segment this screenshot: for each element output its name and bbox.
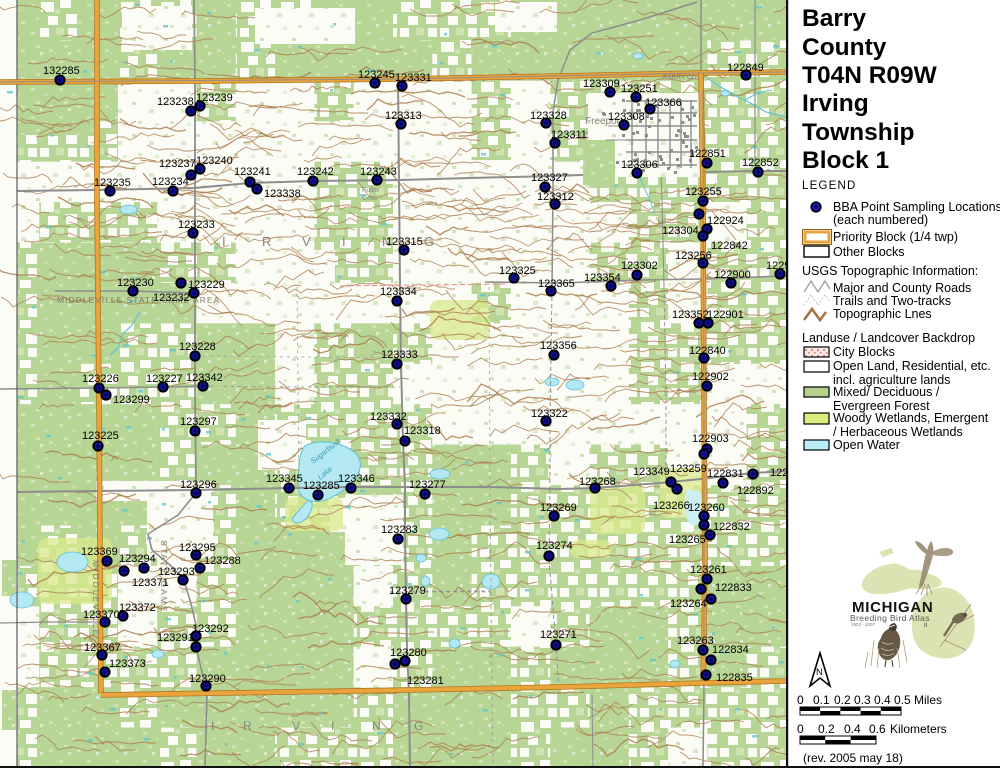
svg-text:0: 0 (797, 722, 804, 736)
svg-text:123264: 123264 (670, 598, 707, 610)
svg-text:G: G (414, 719, 423, 733)
svg-text:123296: 123296 (180, 479, 217, 491)
svg-text:123271: 123271 (540, 629, 577, 641)
svg-text:Woody Wetlands, Emergent: Woody Wetlands, Emergent (833, 411, 989, 425)
svg-text:0.6: 0.6 (869, 722, 886, 736)
svg-text:123260: 123260 (688, 502, 725, 514)
svg-text:123372: 123372 (119, 602, 156, 614)
svg-text:123277: 123277 (409, 479, 446, 491)
svg-text:I: I (222, 234, 226, 249)
svg-text:123304: 123304 (662, 225, 699, 237)
svg-text:BARRY CO: BARRY CO (663, 74, 697, 81)
svg-text:122834: 122834 (712, 644, 749, 656)
svg-text:123295: 123295 (179, 542, 216, 554)
svg-text:County: County (802, 34, 887, 61)
svg-text:123313: 123313 (385, 110, 422, 122)
svg-text:123366: 123366 (645, 97, 682, 109)
svg-text:122852: 122852 (742, 157, 779, 169)
svg-text:Topographic Lnes: Topographic Lnes (833, 307, 932, 321)
svg-text:Miles: Miles (914, 693, 942, 707)
svg-text:R: R (243, 719, 252, 733)
svg-text:123235: 123235 (94, 177, 131, 189)
svg-text:Major and County Roads: Major and County Roads (833, 281, 971, 295)
svg-text:123322: 123322 (531, 408, 568, 420)
svg-text:123283: 123283 (381, 524, 418, 536)
svg-text:0.1: 0.1 (813, 693, 830, 707)
svg-text:123338: 123338 (264, 188, 301, 200)
svg-text:Landuse / Landcover Backdrop: Landuse / Landcover Backdrop (802, 331, 975, 345)
svg-text:123261: 123261 (690, 564, 727, 576)
svg-text:(rev. 2005 may 18): (rev. 2005 may 18) (803, 751, 903, 765)
svg-text:123327: 123327 (531, 172, 568, 184)
svg-text:123294: 123294 (119, 553, 156, 565)
svg-text:123342: 123342 (186, 372, 223, 384)
svg-text:Trails and Two-tracks: Trails and Two-tracks (833, 294, 951, 308)
svg-text:123334: 123334 (380, 286, 417, 298)
svg-text:123256: 123256 (675, 250, 712, 262)
svg-text:0.4: 0.4 (874, 693, 891, 707)
svg-text:0.4: 0.4 (844, 722, 861, 736)
svg-text:City Blocks: City Blocks (833, 345, 895, 359)
svg-text:123281: 123281 (407, 675, 444, 687)
svg-text:123279: 123279 (389, 585, 426, 597)
svg-text:122900: 122900 (714, 269, 751, 281)
svg-text:122849: 122849 (727, 62, 764, 74)
svg-text:Open Water: Open Water (833, 438, 900, 452)
svg-text:123318: 123318 (404, 425, 441, 437)
svg-text:Cem: Cem (362, 195, 377, 202)
svg-text:I: I (331, 719, 334, 733)
svg-text:123288: 123288 (204, 555, 241, 567)
svg-text:R: R (262, 234, 271, 249)
svg-text:123243: 123243 (360, 166, 397, 178)
svg-text:123299: 123299 (113, 394, 150, 406)
svg-text:122851: 122851 (689, 148, 726, 160)
svg-text:123354: 123354 (584, 272, 621, 284)
svg-text:123349: 123349 (633, 466, 670, 478)
svg-text:123325: 123325 (499, 265, 536, 277)
svg-text:123352: 123352 (672, 309, 709, 321)
svg-text:Open Land, Residential, etc.: Open Land, Residential, etc. (833, 359, 991, 373)
svg-text:123225: 123225 (82, 430, 119, 442)
svg-text:123263: 123263 (677, 635, 714, 647)
svg-text:123315: 123315 (386, 236, 423, 248)
svg-text:123297: 123297 (180, 416, 217, 428)
svg-text:0.2: 0.2 (834, 693, 851, 707)
svg-text:MIDDLEVILLE: MIDDLEVILLE (91, 560, 101, 637)
svg-text:123233: 123233 (178, 219, 215, 231)
svg-text:V: V (292, 719, 300, 733)
svg-text:N: N (816, 667, 823, 678)
svg-text:123226: 123226 (82, 373, 119, 385)
svg-text:123332: 123332 (370, 411, 407, 423)
svg-text:Fuller: Fuller (362, 187, 380, 194)
svg-text:Block 1: Block 1 (802, 147, 889, 174)
svg-text:123365: 123365 (538, 278, 575, 290)
svg-text:123369: 123369 (81, 546, 118, 558)
svg-text:123237: 123237 (159, 158, 196, 170)
svg-text:Barry: Barry (802, 5, 866, 32)
svg-text:I: I (342, 234, 346, 249)
svg-text:1902 - 2007: 1902 - 2007 (851, 622, 876, 627)
svg-text:123346: 123346 (338, 473, 375, 485)
svg-text:Priority Block (1/4 twp): Priority Block (1/4 twp) (833, 230, 958, 244)
svg-text:123240: 123240 (196, 155, 233, 167)
svg-text:123230: 123230 (117, 277, 154, 289)
svg-text:122835: 122835 (716, 672, 753, 684)
svg-text:123266: 123266 (653, 500, 690, 512)
svg-text:I: I (211, 719, 214, 733)
svg-text:122833: 122833 (715, 582, 752, 594)
svg-text:0: 0 (797, 693, 804, 707)
svg-text:/ Herbaceous Wetlands: / Herbaceous Wetlands (833, 425, 963, 439)
svg-text:V: V (302, 234, 311, 249)
svg-text:132285: 132285 (43, 65, 80, 77)
svg-text:123367: 123367 (84, 642, 121, 654)
svg-text:LEGEND: LEGEND (802, 180, 857, 192)
svg-text:0.3: 0.3 (854, 693, 871, 707)
svg-text:122901: 122901 (707, 309, 744, 321)
svg-text:Irving: Irving (802, 90, 869, 117)
svg-text:123238: 123238 (157, 96, 194, 108)
svg-text:0.5: 0.5 (894, 693, 911, 707)
svg-text:123234: 123234 (152, 176, 189, 188)
svg-text:122832: 122832 (713, 521, 750, 533)
svg-text:123311: 123311 (551, 129, 587, 141)
svg-text:123285: 123285 (303, 480, 340, 492)
svg-text:123274: 123274 (536, 540, 573, 552)
svg-text:122902: 122902 (692, 371, 729, 383)
svg-text:123232: 123232 (153, 292, 190, 304)
svg-text:123290: 123290 (189, 673, 226, 685)
svg-text:T04N R09W: T04N R09W (802, 62, 938, 89)
svg-text:Mixed/ Deciduous /: Mixed/ Deciduous / (833, 385, 940, 399)
svg-text:BBA Point Sampling Locations: BBA Point Sampling Locations (833, 200, 1000, 214)
svg-text:123251: 123251 (621, 83, 658, 95)
svg-text:N: N (372, 719, 381, 733)
svg-text:Kilometers: Kilometers (890, 722, 947, 736)
svg-text:123268: 123268 (579, 476, 616, 488)
svg-text:123308: 123308 (608, 111, 645, 123)
svg-text:122840: 122840 (689, 345, 726, 357)
svg-text:123373: 123373 (109, 658, 146, 670)
svg-text:123333: 123333 (381, 349, 418, 361)
svg-text:123265: 123265 (669, 534, 706, 546)
svg-text:123292: 123292 (192, 623, 229, 635)
svg-text:122831: 122831 (707, 468, 744, 480)
svg-text:123245: 123245 (358, 69, 395, 81)
svg-text:123241: 123241 (234, 166, 271, 178)
svg-text:123370: 123370 (83, 609, 120, 621)
svg-text:123228: 123228 (179, 341, 216, 353)
svg-text:Other Blocks: Other Blocks (833, 245, 905, 259)
svg-text:123227: 123227 (146, 373, 183, 385)
svg-text:123312: 123312 (537, 191, 574, 203)
svg-text:123242: 123242 (297, 166, 334, 178)
svg-text:123345: 123345 (266, 473, 303, 485)
svg-text:123302: 123302 (621, 260, 658, 272)
svg-text:Township: Township (802, 119, 915, 146)
svg-text:123331: 123331 (395, 72, 432, 84)
svg-text:123306: 123306 (621, 159, 658, 171)
svg-text:123309: 123309 (583, 78, 620, 90)
svg-text:123328: 123328 (530, 110, 567, 122)
svg-text:122903: 122903 (692, 433, 729, 445)
svg-text:123356: 123356 (540, 340, 577, 352)
svg-text:123371: 123371 (132, 577, 169, 589)
svg-text:123255: 123255 (685, 186, 722, 198)
svg-text:122842: 122842 (711, 240, 748, 252)
svg-text:123259: 123259 (670, 463, 707, 475)
svg-text:II: II (924, 623, 928, 629)
svg-text:122924: 122924 (707, 215, 744, 227)
svg-text:G: G (424, 234, 434, 249)
svg-text:123269: 123269 (540, 502, 577, 514)
svg-text:(each numbered): (each numbered) (833, 213, 928, 227)
svg-text:122892: 122892 (737, 485, 774, 497)
svg-text:123239: 123239 (196, 92, 233, 104)
svg-text:USGS Topographic Information:: USGS Topographic Information: (802, 264, 978, 278)
svg-text:123291: 123291 (157, 632, 194, 644)
svg-text:0.2: 0.2 (818, 722, 835, 736)
